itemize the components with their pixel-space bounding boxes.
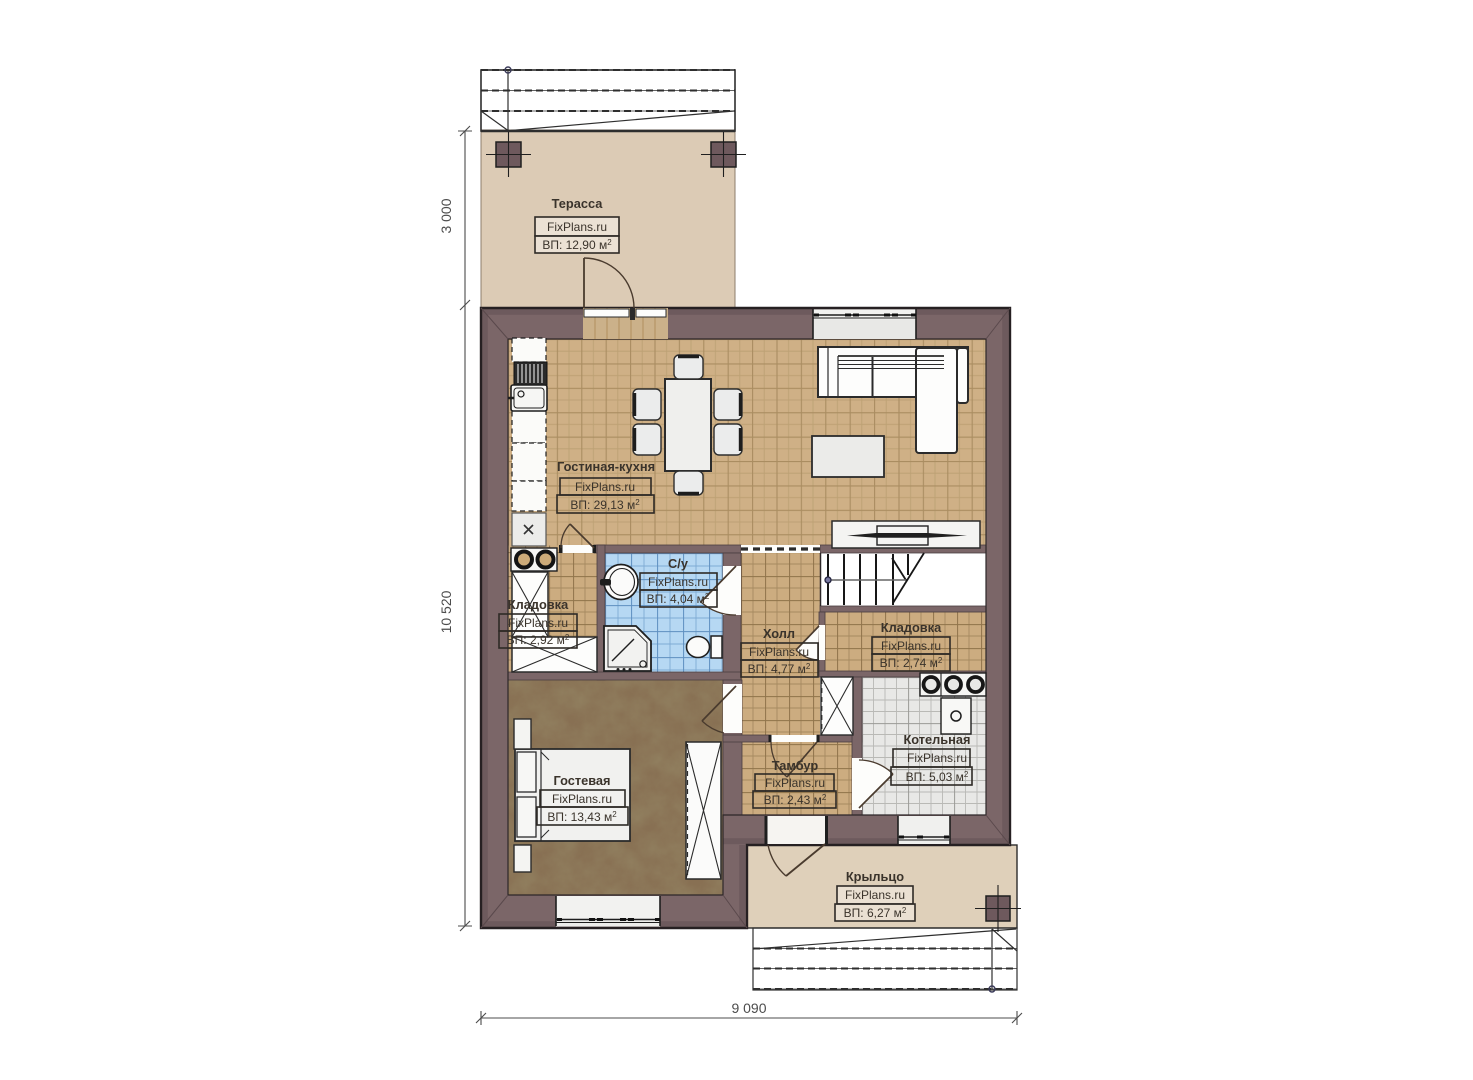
svg-text:С/у: С/у bbox=[668, 556, 689, 571]
svg-text:ВП: 13,43 м2: ВП: 13,43 м2 bbox=[547, 810, 617, 824]
svg-text:FixPlans.ru: FixPlans.ru bbox=[907, 751, 967, 765]
svg-text:9 090: 9 090 bbox=[731, 1000, 766, 1016]
svg-text:FixPlans.ru: FixPlans.ru bbox=[845, 888, 905, 902]
svg-text:3 000: 3 000 bbox=[438, 198, 454, 233]
svg-text:Гостиная-кухня: Гостиная-кухня bbox=[557, 459, 655, 474]
svg-text:ВП: 2,92 м2: ВП: 2,92 м2 bbox=[507, 633, 570, 647]
svg-text:FixPlans.ru: FixPlans.ru bbox=[648, 575, 708, 589]
svg-text:ВП: 4,77 м2: ВП: 4,77 м2 bbox=[748, 662, 811, 676]
svg-text:ВП: 4,04 м2: ВП: 4,04 м2 bbox=[647, 592, 710, 606]
svg-text:ВП: 2,74 м2: ВП: 2,74 м2 bbox=[880, 656, 943, 670]
svg-text:10 520: 10 520 bbox=[438, 590, 454, 633]
svg-text:FixPlans.ru: FixPlans.ru bbox=[749, 645, 809, 659]
svg-text:Котельная: Котельная bbox=[903, 732, 970, 747]
svg-text:ВП: 2,43 м2: ВП: 2,43 м2 bbox=[764, 793, 827, 807]
svg-text:Холл: Холл bbox=[763, 626, 795, 641]
svg-text:Терасса: Терасса bbox=[552, 196, 604, 211]
svg-text:FixPlans.ru: FixPlans.ru bbox=[881, 639, 941, 653]
svg-text:ВП: 6,27 м2: ВП: 6,27 м2 bbox=[844, 906, 907, 920]
svg-text:FixPlans.ru: FixPlans.ru bbox=[765, 776, 825, 790]
svg-text:FixPlans.ru: FixPlans.ru bbox=[508, 616, 568, 630]
svg-text:Крыльцо: Крыльцо bbox=[846, 869, 904, 884]
svg-text:Кладовка: Кладовка bbox=[881, 620, 942, 635]
svg-text:ВП: 29,13 м2: ВП: 29,13 м2 bbox=[570, 498, 640, 512]
svg-text:FixPlans.ru: FixPlans.ru bbox=[552, 792, 612, 806]
svg-text:FixPlans.ru: FixPlans.ru bbox=[575, 480, 635, 494]
svg-text:Тамбур: Тамбур bbox=[772, 758, 819, 773]
svg-text:Гостевая: Гостевая bbox=[553, 773, 610, 788]
svg-text:FixPlans.ru: FixPlans.ru bbox=[547, 220, 607, 234]
svg-text:Кладовка: Кладовка bbox=[508, 597, 569, 612]
svg-text:ВП: 12,90 м2: ВП: 12,90 м2 bbox=[542, 238, 612, 252]
svg-text:ВП: 5,03 м2: ВП: 5,03 м2 bbox=[906, 770, 969, 784]
